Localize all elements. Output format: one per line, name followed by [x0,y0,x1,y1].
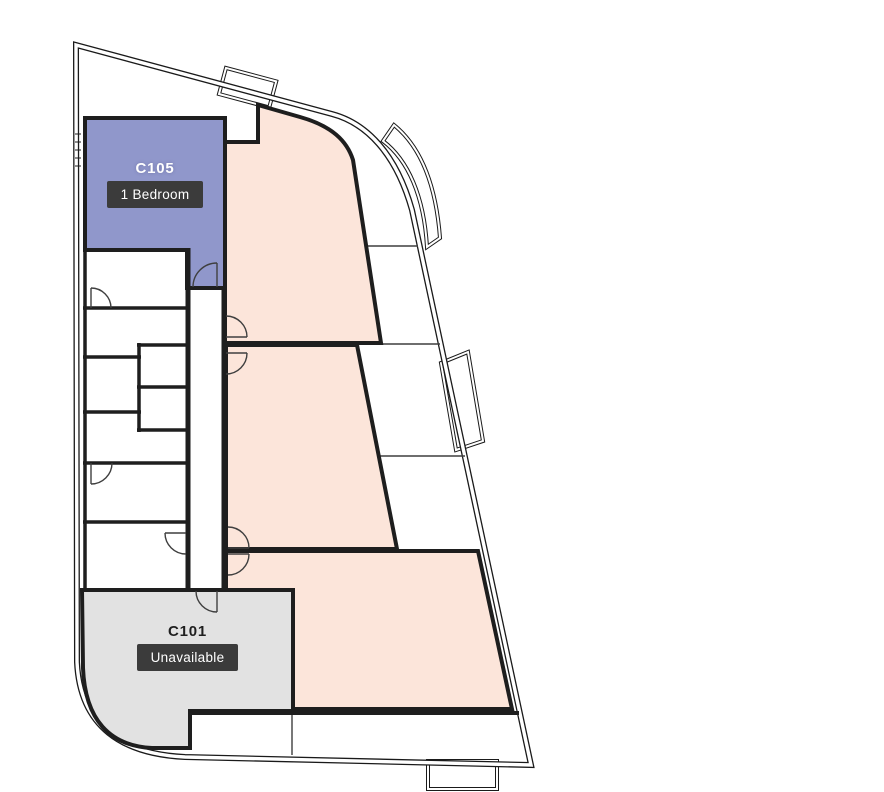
interior-walls [83,248,224,592]
unit-label-c101[interactable]: C101 Unavailable [82,624,293,671]
balcony-upper-right [383,125,440,247]
unit-status-badge: Unavailable [137,644,239,671]
unit-status-badge: 1 Bedroom [107,181,204,208]
unit-label-c105[interactable]: C105 1 Bedroom [85,161,225,208]
unit-highlight-top-region[interactable] [225,105,381,343]
floorplan-svg [0,0,884,792]
floorplan-stage: C105 1 Bedroom C101 Unavailable [0,0,884,792]
unit-highlight-middle-region[interactable] [226,345,397,549]
unit-id-text: C101 [168,624,207,639]
unit-id-text: C105 [135,161,174,176]
